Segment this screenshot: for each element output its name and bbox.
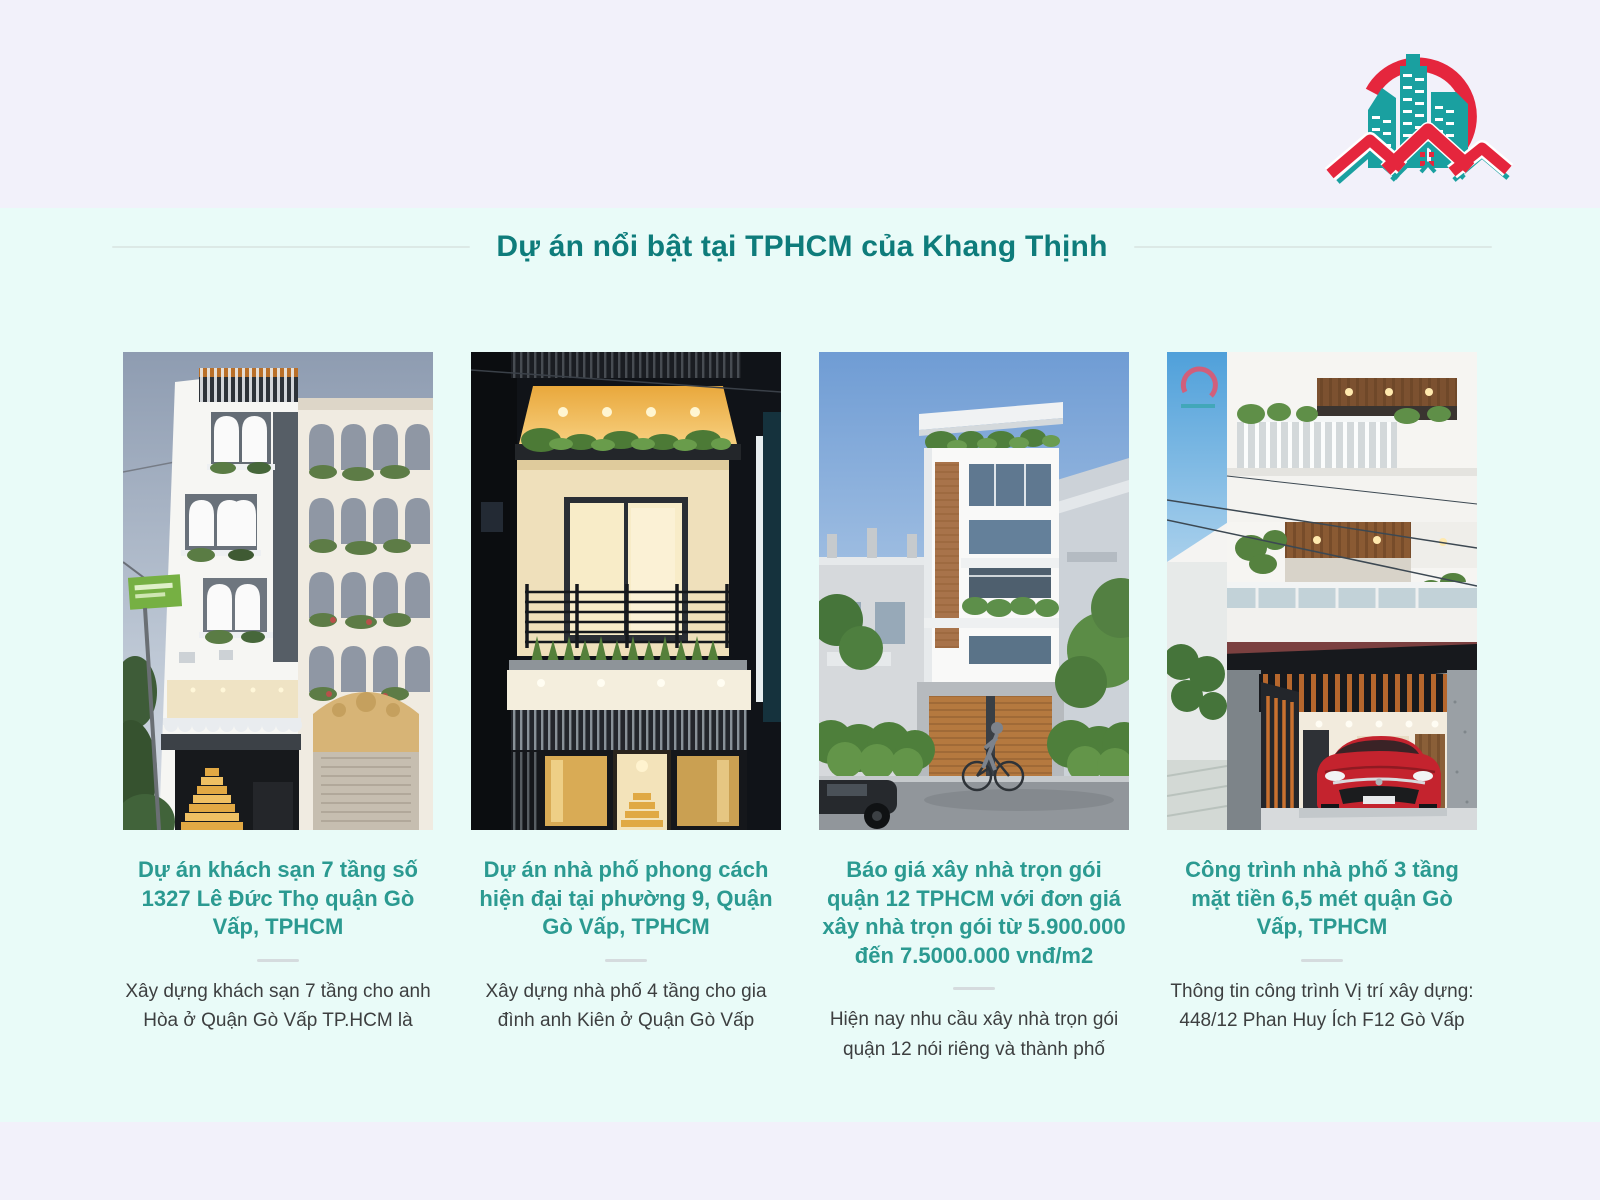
section-heading: Dự án nổi bật tại TPHCM của Khang Thịnh xyxy=(496,230,1107,264)
project-card-4: Công trình nhà phố 3 tầng mặt tiền 6,5 m… xyxy=(1167,352,1477,1036)
project-photo-hotel[interactable] xyxy=(123,352,433,830)
project-title[interactable]: Báo giá xây nhà trọn gói quận 12 TPHCM v… xyxy=(819,856,1129,970)
project-cards: Dự án khách sạn 7 tầng số 1327 Lê Đức Th… xyxy=(123,352,1477,1064)
project-card-1: Dự án khách sạn 7 tầng số 1327 Lê Đức Th… xyxy=(123,352,433,1036)
project-description: Hiện nay nhu cầu xây nhà trọn gói quận 1… xyxy=(819,1005,1129,1064)
project-photo-render-day[interactable] xyxy=(819,352,1129,830)
featured-projects-section: Dự án nổi bật tại TPHCM của Khang Thịnh xyxy=(0,208,1600,1122)
title-divider xyxy=(605,959,647,962)
project-card-2: Dự án nhà phố phong cách hiện đại tại ph… xyxy=(471,352,781,1036)
project-description: Xây dựng khách sạn 7 tầng cho anh Hòa ở … xyxy=(123,977,433,1036)
project-photo-townhouse-night[interactable] xyxy=(471,352,781,830)
project-photo-house-red-car[interactable] xyxy=(1167,352,1477,830)
project-title[interactable]: Dự án khách sạn 7 tầng số 1327 Lê Đức Th… xyxy=(123,856,433,942)
project-title[interactable]: Công trình nhà phố 3 tầng mặt tiền 6,5 m… xyxy=(1167,856,1477,942)
title-divider xyxy=(953,987,995,990)
heading-rule-left xyxy=(112,246,470,248)
page: Dự án nổi bật tại TPHCM của Khang Thịnh xyxy=(0,0,1600,1200)
buildings-red-roofs-swoosh-icon xyxy=(1316,40,1516,190)
project-title[interactable]: Dự án nhà phố phong cách hiện đại tại ph… xyxy=(471,856,781,942)
project-description: Xây dựng nhà phố 4 tầng cho gia đình anh… xyxy=(471,977,781,1036)
company-logo xyxy=(1316,40,1516,190)
project-card-3: Báo giá xây nhà trọn gói quận 12 TPHCM v… xyxy=(819,352,1129,1064)
heading-rule-right xyxy=(1134,246,1492,248)
section-heading-row: Dự án nổi bật tại TPHCM của Khang Thịnh xyxy=(112,230,1492,264)
title-divider xyxy=(257,959,299,962)
project-description: Thông tin công trình Vị trí xây dựng: 44… xyxy=(1167,977,1477,1036)
title-divider xyxy=(1301,959,1343,962)
